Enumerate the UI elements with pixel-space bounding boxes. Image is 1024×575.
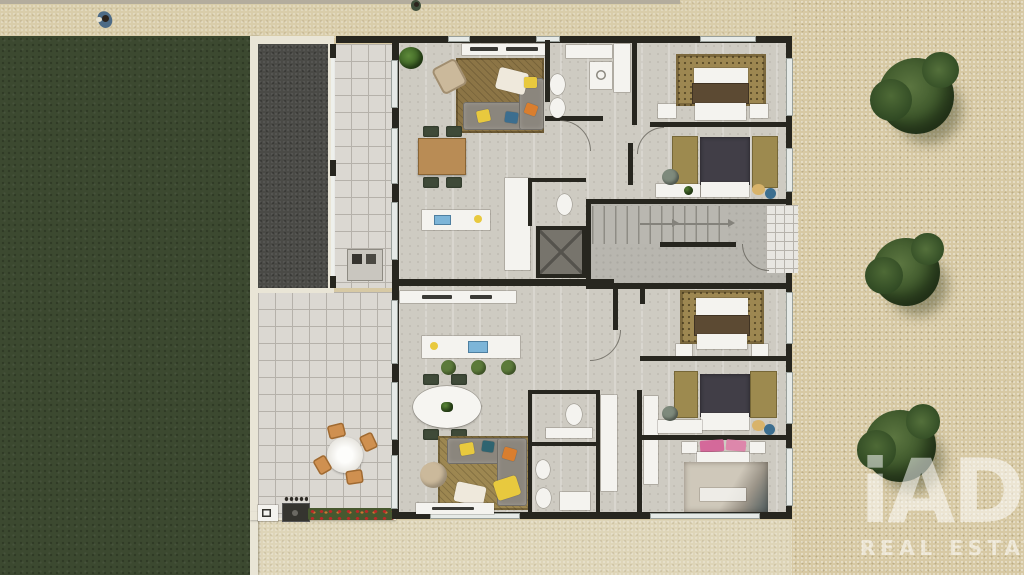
balcony-post	[330, 44, 336, 58]
table-centerpiece	[441, 402, 453, 412]
wc-wall	[528, 178, 532, 226]
lower-kitchen-counter	[400, 291, 516, 303]
bed-duvet-textured	[684, 462, 768, 512]
dining-chair	[446, 177, 462, 188]
pedestrian	[96, 8, 114, 30]
burner-icon	[292, 510, 298, 516]
stair-direction-line	[640, 223, 732, 225]
dining-chair	[446, 126, 462, 137]
dark-gravel-terrace	[258, 44, 328, 292]
pouf	[420, 462, 447, 488]
bar-stool	[501, 360, 516, 375]
bedroom4-rug-panel	[750, 371, 777, 418]
patio-chair	[345, 469, 364, 485]
window	[391, 128, 398, 184]
window	[391, 382, 398, 440]
floor-plan-scene: iAD REAL ESTATE	[0, 0, 1024, 575]
exterior-wall-left	[392, 36, 399, 518]
window	[786, 148, 793, 192]
stair-arrow-icon	[672, 219, 679, 227]
floor-cushion	[765, 188, 776, 199]
outdoor-sink-cabinet	[258, 505, 278, 521]
desk	[658, 420, 702, 433]
bedroom-wall	[640, 286, 645, 304]
nightstand	[676, 344, 692, 356]
barbecue-counter	[282, 503, 310, 522]
floor-cushion	[764, 424, 775, 435]
brand-tagline: REAL ESTATE	[860, 538, 1024, 558]
pillow	[524, 77, 537, 88]
curb-line	[0, 0, 680, 4]
desk	[656, 184, 700, 197]
bed-mattress	[701, 182, 749, 197]
bathroom-wall	[528, 390, 532, 514]
bedroom-wall	[632, 40, 637, 125]
toilet	[536, 488, 551, 508]
bed-pillow-pink	[726, 439, 747, 452]
garden-wall-left	[250, 36, 258, 575]
bed-pillows	[694, 68, 748, 84]
fruit-bowl-icon	[474, 215, 482, 223]
patio-table	[327, 437, 363, 473]
hallway-wall	[613, 286, 618, 330]
balcony-post	[330, 276, 336, 288]
sidewalk-bottom	[250, 520, 792, 575]
bar-stool	[441, 360, 456, 375]
bottles-row	[284, 496, 308, 502]
patio-edge-wall	[258, 288, 334, 293]
shower-tray	[560, 492, 590, 510]
shower	[614, 44, 630, 92]
bedroom-wall	[628, 143, 633, 185]
balcony-post	[330, 160, 336, 176]
hall-wall-top	[586, 199, 786, 204]
desk-plant	[684, 186, 693, 195]
potted-plant	[399, 47, 423, 69]
bathroom-wall	[528, 442, 600, 446]
bathroom-wall	[545, 40, 550, 102]
bed-pillow-pink	[700, 439, 725, 453]
wardrobe	[644, 396, 658, 484]
bidet	[550, 98, 565, 118]
cooktop-icon	[422, 295, 452, 299]
pillow	[481, 440, 494, 453]
pedestrian	[410, 0, 422, 12]
fruit-bowl-icon	[430, 342, 438, 350]
bedroom2-rug-panel	[752, 136, 778, 188]
dining-chair	[451, 374, 467, 385]
lower-kitchen-island	[422, 336, 520, 358]
bed-duvet	[694, 315, 750, 336]
window	[786, 292, 793, 344]
garden-wall-top	[250, 36, 334, 44]
lower-dining-table	[413, 386, 481, 428]
window	[650, 513, 760, 519]
dining-chair	[423, 429, 439, 440]
nightstand	[750, 442, 765, 453]
bathroom-wall	[596, 390, 600, 514]
window	[391, 300, 398, 364]
sideboard-detail	[506, 47, 538, 51]
stair-inner-wall	[660, 242, 736, 247]
bed-duvet	[700, 137, 750, 185]
sink-icon	[262, 509, 271, 517]
upper-kitchen-island	[422, 210, 490, 230]
dining-chair	[423, 177, 439, 188]
sink-icon	[434, 215, 451, 225]
upper-tall-cabinets	[505, 178, 530, 270]
lower-patio	[258, 292, 392, 518]
pedestrian-head	[414, 2, 419, 7]
lawn-left	[0, 36, 250, 575]
toilet	[557, 194, 572, 215]
elevator	[536, 226, 586, 278]
flower-bed	[308, 508, 394, 520]
window	[786, 372, 793, 424]
upper-sideboard	[462, 44, 548, 55]
window	[391, 202, 398, 260]
sink-icon	[468, 341, 488, 353]
bathroom-vanity	[566, 45, 612, 58]
bed-pillows	[697, 334, 747, 349]
bedroom-wall	[650, 122, 786, 127]
bed-mattress	[701, 413, 749, 430]
bathroom-vanity	[546, 428, 592, 438]
window	[391, 60, 398, 108]
dining-chair	[423, 374, 439, 385]
brand-wordmark: iAD	[860, 448, 1024, 536]
window	[700, 36, 756, 42]
dining-chair	[423, 126, 439, 137]
toilet	[566, 404, 582, 425]
toilet	[550, 74, 565, 95]
pillow	[459, 442, 475, 456]
bed-duvet	[692, 83, 749, 104]
window	[786, 448, 793, 506]
desk-chair	[662, 406, 678, 421]
hall-wall-left	[586, 199, 591, 289]
unit-divider-wall	[398, 279, 614, 286]
tree	[878, 58, 954, 134]
window	[391, 455, 398, 509]
balcony-counter	[348, 250, 382, 280]
bar-stool	[471, 360, 486, 375]
sink	[536, 460, 550, 479]
pedestrian-bag	[96, 17, 102, 22]
nightstand	[658, 104, 676, 118]
bedroom-wall	[640, 356, 786, 361]
pedestrian-head	[102, 15, 109, 22]
sideboard-detail	[470, 47, 498, 51]
nightstand	[682, 442, 697, 453]
tv-icon	[432, 507, 474, 510]
desk-chair	[662, 169, 679, 185]
bathroom-wall	[528, 390, 600, 394]
tree	[872, 238, 940, 306]
bed-blanket	[700, 488, 746, 501]
pillow	[504, 111, 518, 124]
grill-icon	[366, 254, 376, 264]
grill-icon	[352, 254, 362, 264]
bed-duvet	[700, 374, 750, 417]
nightstand	[752, 344, 768, 356]
window	[786, 58, 793, 116]
floor-cushion	[752, 184, 765, 195]
washer-drum-icon	[596, 70, 606, 80]
washing-machine	[590, 62, 612, 89]
wc-wall	[528, 178, 586, 182]
stair-arrow-icon	[728, 219, 735, 227]
bedroom-wing-wall	[637, 390, 642, 514]
upper-dining-table	[418, 138, 466, 175]
staircase	[592, 206, 728, 244]
nightstand	[750, 104, 768, 118]
watermark-logo: iAD REAL ESTATE	[860, 448, 1024, 558]
counter-detail	[470, 295, 492, 299]
tv-console	[416, 503, 494, 514]
bed-mattress	[695, 103, 746, 120]
window	[448, 36, 470, 42]
corridor-wardrobe	[601, 395, 617, 491]
entrance-landing	[766, 205, 798, 273]
